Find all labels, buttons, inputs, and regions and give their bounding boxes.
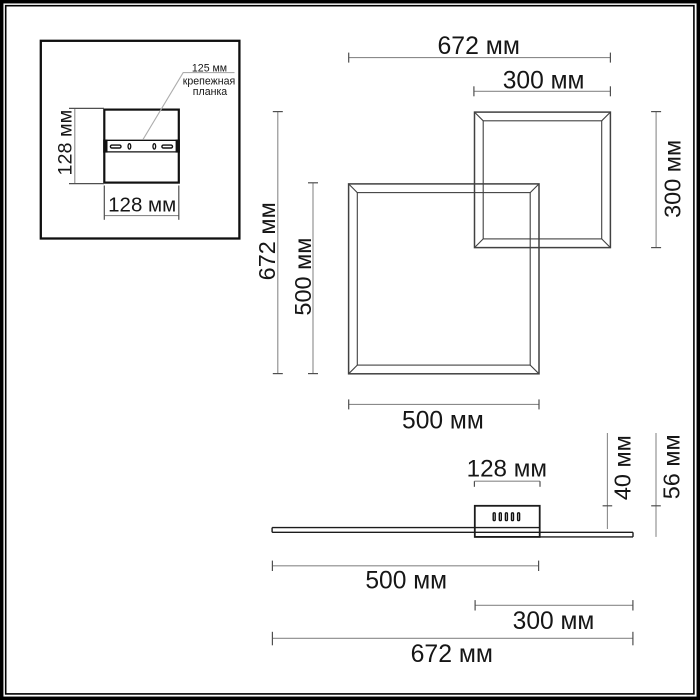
- svg-text:500 мм: 500 мм: [402, 407, 484, 434]
- svg-text:300 мм: 300 мм: [513, 608, 595, 635]
- svg-text:672 мм: 672 мм: [438, 33, 520, 60]
- svg-text:планка: планка: [193, 86, 228, 98]
- svg-text:56 мм: 56 мм: [658, 434, 684, 499]
- svg-text:128 мм: 128 мм: [467, 455, 547, 482]
- svg-text:128 мм: 128 мм: [55, 110, 77, 176]
- svg-text:500 мм: 500 мм: [290, 238, 316, 316]
- svg-text:128 мм: 128 мм: [108, 194, 176, 217]
- svg-text:40 мм: 40 мм: [609, 435, 635, 500]
- svg-text:672 мм: 672 мм: [254, 202, 280, 280]
- svg-text:672 мм: 672 мм: [411, 641, 493, 668]
- svg-text:500 мм: 500 мм: [365, 567, 447, 594]
- svg-text:300 мм: 300 мм: [659, 140, 685, 218]
- svg-text:300 мм: 300 мм: [503, 67, 585, 94]
- svg-text:125 мм: 125 мм: [192, 62, 227, 74]
